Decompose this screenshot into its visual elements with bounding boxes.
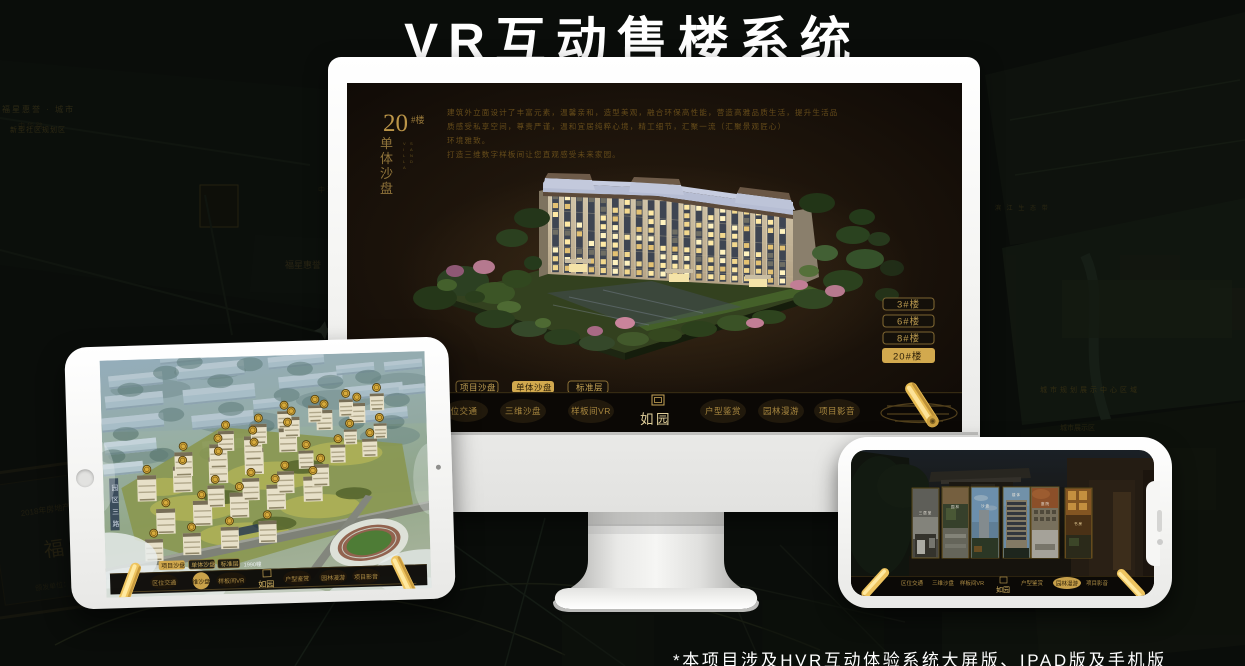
svg-text:三 居 室: 三 居 室 — [919, 510, 932, 515]
svg-text:三维沙盘: 三维沙盘 — [505, 406, 541, 416]
svg-text:滨 江 生 态 带: 滨 江 生 态 带 — [995, 204, 1050, 212]
svg-text:三维沙盘: 三维沙盘 — [932, 579, 955, 587]
svg-text:A: A — [403, 165, 406, 170]
svg-text:D: D — [410, 159, 413, 164]
svg-text:位交通: 位交通 — [450, 406, 477, 416]
svg-text:A: A — [410, 147, 413, 152]
svg-text:单体沙盘: 单体沙盘 — [516, 383, 552, 393]
svg-text:项目影音: 项目影音 — [1086, 579, 1109, 587]
svg-text:沙: 沙 — [380, 166, 393, 181]
svg-text:福星惠誉 · 城市: 福星惠誉 · 城市 — [2, 104, 75, 114]
svg-text:区位交通: 区位交通 — [901, 579, 924, 587]
svg-text:样板间VR: 样板间VR — [960, 579, 984, 587]
svg-text:20: 20 — [383, 110, 408, 137]
svg-text:楼 体: 楼 体 — [1012, 492, 1020, 497]
svg-text:#楼: #楼 — [411, 114, 425, 125]
svg-text:体: 体 — [380, 151, 393, 166]
svg-text:城市规划展示中心区域: 城市规划展示中心区域 — [1040, 385, 1140, 394]
svg-text:三: 三 — [112, 508, 119, 516]
svg-text:新型社区规划区: 新型社区规划区 — [10, 125, 66, 134]
svg-text:如园: 如园 — [640, 412, 672, 427]
svg-text:I: I — [403, 147, 404, 152]
svg-text:福星惠誉: 福星惠誉 — [285, 259, 321, 270]
svg-text:20#楼: 20#楼 — [893, 351, 922, 363]
svg-text:3#楼: 3#楼 — [897, 299, 920, 311]
svg-text:建筑外立面设计了丰富元素，温馨亲和，造型美观，融合环保高性能: 建筑外立面设计了丰富元素，温馨亲和，造型美观，融合环保高性能，营造高雅品质生活，… — [447, 107, 839, 117]
svg-text:城市展示区: 城市展示区 — [1060, 423, 1095, 432]
svg-text:园林漫游: 园林漫游 — [1056, 580, 1079, 588]
svg-text:标准层: 标准层 — [576, 383, 603, 393]
svg-text:N: N — [410, 153, 413, 158]
svg-text:庭 院: 庭 院 — [1041, 501, 1049, 506]
svg-text:户型鉴赏: 户型鉴赏 — [1021, 579, 1044, 587]
svg-text:项目影音: 项目影音 — [819, 406, 855, 416]
svg-text:区: 区 — [112, 496, 119, 504]
svg-text:园 林: 园 林 — [951, 504, 959, 509]
svg-text:8#楼: 8#楼 — [897, 333, 920, 345]
svg-text:单: 单 — [380, 136, 393, 151]
svg-text:S: S — [410, 141, 413, 146]
svg-text:户型鉴赏: 户型鉴赏 — [705, 406, 741, 416]
svg-text:沙 盘: 沙 盘 — [981, 503, 989, 508]
svg-text:6#楼: 6#楼 — [897, 316, 920, 328]
svg-text:园林漫游: 园林漫游 — [763, 406, 799, 416]
svg-text:环境雅致。: 环境雅致。 — [447, 135, 491, 145]
svg-text:如园: 如园 — [258, 579, 274, 589]
svg-text:样板间VR: 样板间VR — [571, 406, 611, 416]
svg-text:质感受私享空间，尊贵严谨，温和宜居纯粹心境，精工细节，汇聚一: 质感受私享空间，尊贵严谨，温和宜居纯粹心境，精工细节，汇聚一流（汇聚景观匠心） — [447, 121, 786, 131]
svg-text:打造三维数字样板间让您直观感受未来家园。: 打造三维数字样板间让您直观感受未来家园。 — [447, 149, 621, 159]
svg-text:书 房: 书 房 — [1074, 521, 1082, 526]
svg-text:如园: 如园 — [996, 585, 1010, 594]
svg-text:V: V — [403, 141, 406, 146]
svg-text:路: 路 — [112, 519, 119, 528]
svg-text:项目沙盘: 项目沙盘 — [460, 383, 496, 393]
svg-text:盘: 盘 — [380, 181, 393, 196]
